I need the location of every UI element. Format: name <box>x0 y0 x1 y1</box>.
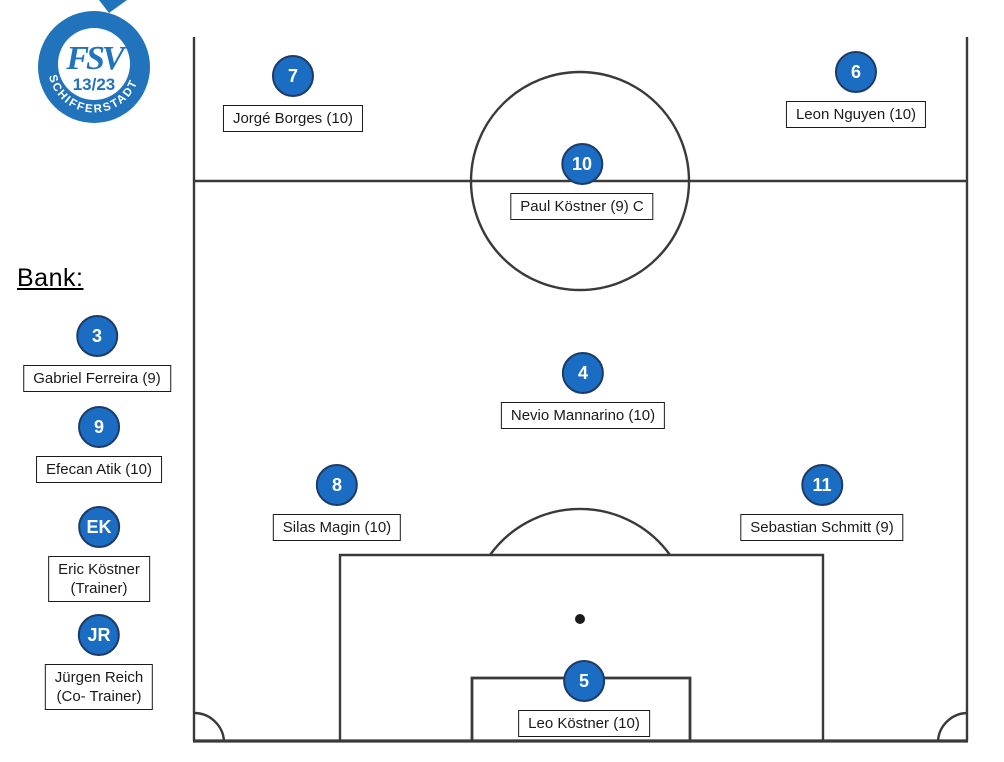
bench-title: Bank: <box>17 264 83 293</box>
player-marker-9: 9 <box>78 406 120 448</box>
player-name-box: Gabriel Ferreira (9) <box>23 365 171 392</box>
player-name: Gabriel Ferreira (9) <box>33 370 161 387</box>
player-number: 8 <box>332 476 342 494</box>
pitch-player-7: 7 Jorgé Borges (10) <box>223 55 363 132</box>
player-marker-10: 10 <box>561 143 603 185</box>
bench-item-9: 9 Efecan Atik (10) <box>36 406 162 483</box>
player-number: 6 <box>851 63 861 81</box>
player-number: 5 <box>579 672 589 690</box>
player-marker-3: 3 <box>76 315 118 357</box>
player-number: 9 <box>94 418 104 436</box>
player-name-box: Jorgé Borges (10) <box>223 105 363 132</box>
player-name: Jorgé Borges (10) <box>233 110 353 127</box>
player-marker-7: 7 <box>272 55 314 97</box>
player-marker-5: 5 <box>563 660 605 702</box>
player-marker-11: 11 <box>801 464 843 506</box>
player-marker-6: 6 <box>835 51 877 93</box>
player-name-box: Leon Nguyen (10) <box>786 101 926 128</box>
player-name-box: Efecan Atik (10) <box>36 456 162 483</box>
player-name-box: Paul Köstner (9) C <box>510 193 653 220</box>
player-name-box: Nevio Mannarino (10) <box>501 402 665 429</box>
player-number: 3 <box>92 327 102 345</box>
trainer-name: Eric Köstner <box>58 561 140 578</box>
trainer-initials: JR <box>87 626 110 644</box>
pitch-player-10: 10 Paul Köstner (9) C <box>510 143 653 220</box>
player-name: Leon Nguyen (10) <box>796 106 916 123</box>
player-number: 4 <box>578 364 588 382</box>
pitch-player-11: 11 Sebastian Schmitt (9) <box>740 464 903 541</box>
trainer-name-box: Eric Köstner (Trainer) <box>48 556 150 602</box>
player-name: Sebastian Schmitt (9) <box>750 519 893 536</box>
player-name: Efecan Atik (10) <box>46 461 152 478</box>
trainer-name: Jürgen Reich <box>55 669 143 686</box>
trainer-marker-jr: JR <box>78 614 120 656</box>
player-name: Leo Köstner (10) <box>528 715 640 732</box>
trainer-marker-ek: EK <box>78 506 120 548</box>
trainer-name-box: Jürgen Reich (Co- Trainer) <box>45 664 153 710</box>
pitch-player-4: 4 Nevio Mannarino (10) <box>501 352 665 429</box>
player-name: Silas Magin (10) <box>283 519 391 536</box>
trainer-role: (Trainer) <box>71 580 128 597</box>
bench-item-trainer: EK Eric Köstner (Trainer) <box>48 506 150 602</box>
trainer-role: (Co- Trainer) <box>56 688 141 705</box>
player-marker-4: 4 <box>562 352 604 394</box>
penalty-spot <box>575 614 585 624</box>
pitch-player-8: 8 Silas Magin (10) <box>273 464 401 541</box>
lineup-sheet: FSV 13/23 SCHIFFERSTADT Bank: 3 <box>0 0 1004 762</box>
bench-item-3: 3 Gabriel Ferreira (9) <box>23 315 171 392</box>
pitch-player-5: 5 Leo Köstner (10) <box>518 660 650 737</box>
penalty-arc <box>490 509 670 555</box>
player-number: 11 <box>812 476 831 494</box>
trainer-initials: EK <box>86 518 111 536</box>
player-name-box: Leo Köstner (10) <box>518 710 650 737</box>
bench-item-co-trainer: JR Jürgen Reich (Co- Trainer) <box>45 614 153 710</box>
pitch-player-6: 6 Leon Nguyen (10) <box>786 51 926 128</box>
player-number: 7 <box>288 67 298 85</box>
player-number: 10 <box>572 155 592 173</box>
player-name-box: Sebastian Schmitt (9) <box>740 514 903 541</box>
corner-arc-left <box>194 713 224 741</box>
player-name: Nevio Mannarino (10) <box>511 407 655 424</box>
corner-arc-right <box>938 713 967 741</box>
player-name: Paul Köstner (9) C <box>520 198 643 215</box>
player-marker-8: 8 <box>316 464 358 506</box>
player-name-box: Silas Magin (10) <box>273 514 401 541</box>
